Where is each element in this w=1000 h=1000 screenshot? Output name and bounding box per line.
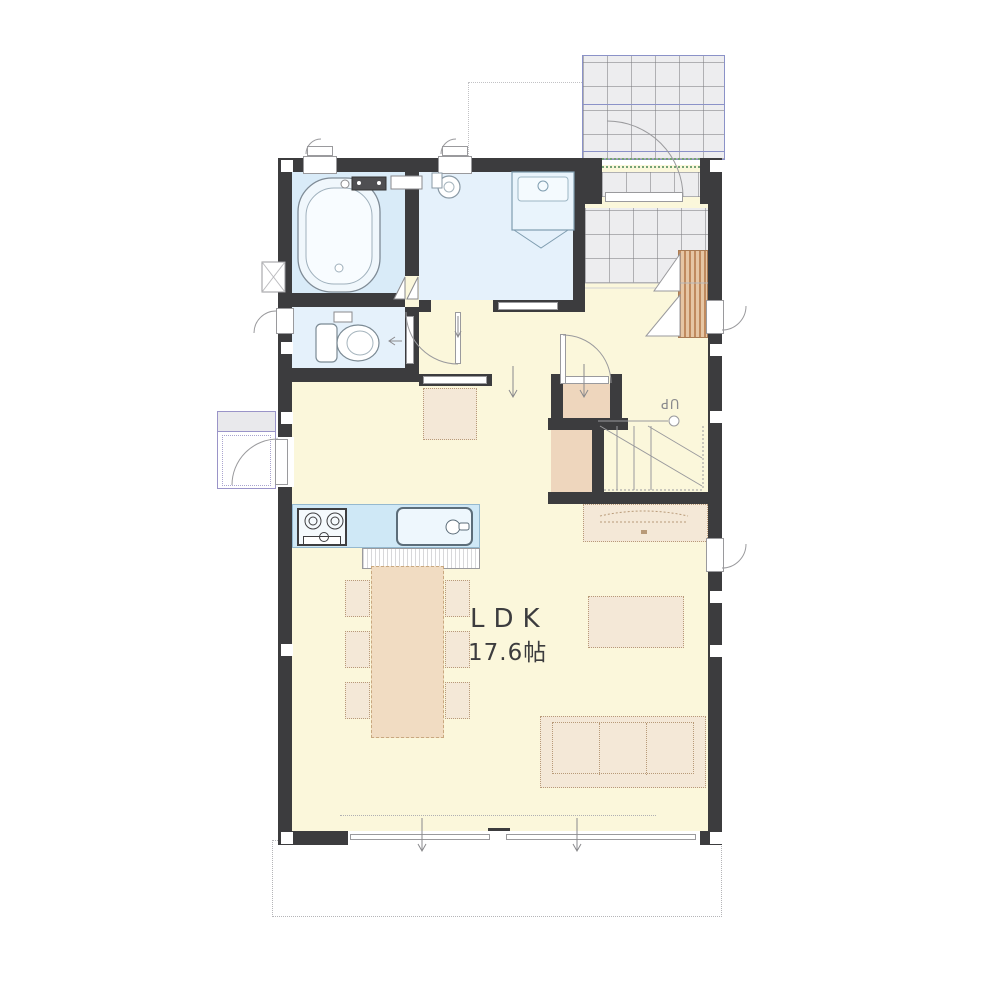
pillar-mark [281, 832, 293, 844]
coffee-table [588, 596, 684, 648]
sofa [540, 716, 706, 788]
pillar-mark [281, 412, 293, 424]
window-top-2 [438, 156, 472, 174]
back-porch-roof [218, 412, 275, 432]
curtain-line [340, 815, 656, 816]
pillar-mark [710, 591, 722, 603]
sofa-seat-divider [599, 723, 600, 775]
pillar-mark [710, 411, 722, 423]
washroom-door-leaf [455, 312, 461, 364]
canopy-outline-left [468, 82, 469, 158]
back-door-leaf [275, 439, 288, 485]
dining-chair [345, 580, 370, 617]
wood-slat-screen [678, 250, 708, 338]
toilet-floor [292, 307, 405, 368]
dining-chair [345, 682, 370, 719]
washroom-sliding-door [498, 302, 558, 310]
tv-board [583, 504, 708, 542]
window-top-1 [303, 156, 337, 174]
dining-chair [445, 682, 470, 719]
wood-deck-outline [272, 840, 722, 917]
pillar-mark [710, 645, 722, 657]
kitchen-sink [396, 507, 473, 546]
porch-blue-line [583, 104, 724, 105]
toilet-sliding-door [406, 316, 414, 364]
washroom-floor [419, 172, 573, 300]
sliding-window-panel [350, 834, 490, 840]
ldk-size-label: 17.6帖 [468, 633, 547, 667]
porch-blue-line [583, 151, 724, 152]
window-right-1 [706, 300, 724, 334]
back-porch-step [222, 435, 271, 486]
wall-pantry-bottom [548, 418, 628, 430]
window-top-1-sill [307, 146, 333, 156]
dining-chair [445, 631, 470, 668]
dining-chair [345, 631, 370, 668]
pantry-sliding-door [565, 376, 609, 384]
entrance-porch-tiles [582, 55, 725, 160]
wall-closet-right [592, 430, 604, 492]
wall-entrance-post-left [585, 172, 602, 204]
back-porch [217, 411, 276, 489]
floor-plan: LDK 17.6帖 UP [0, 0, 1000, 1000]
stove-grill [303, 536, 341, 545]
stairs-up-label: UP [660, 395, 679, 410]
bathroom-floor [292, 172, 405, 293]
sofa-seat-divider [646, 723, 647, 775]
wall-washroom-bottom-stub [419, 300, 431, 312]
pillar-mark [710, 344, 722, 356]
wall-toilet-bottom [278, 368, 419, 382]
kitchen-sliding-door [423, 376, 487, 384]
pillar-mark [710, 160, 722, 172]
window-top-2-sill [442, 146, 468, 156]
window-toilet-left [276, 308, 294, 334]
pillar-mark [281, 644, 293, 656]
sliding-window-panel [506, 834, 696, 840]
window-right-2 [706, 538, 724, 572]
wall-right [708, 158, 722, 845]
dining-table [371, 566, 444, 738]
ldk-room-label: LDK [470, 604, 549, 634]
pillar-mark [710, 832, 722, 844]
dining-chair [445, 580, 470, 617]
understair-closet [551, 430, 592, 492]
pantry-closet [563, 384, 610, 418]
pillar-mark [281, 160, 293, 172]
canopy-outline-top [468, 82, 582, 83]
entrance-step-band [602, 158, 700, 168]
refrigerator-space [423, 388, 477, 440]
entrance-door-leaf [605, 192, 683, 202]
sofa-seats [552, 722, 694, 774]
wall-stairs-bottom [548, 492, 708, 504]
wall-left [278, 158, 292, 845]
pillar-mark [281, 342, 293, 354]
wall-bath-wash-divider [405, 172, 419, 276]
wall-bathroom-bottom [278, 293, 405, 307]
wall-wash-entrance-divider [573, 172, 585, 312]
